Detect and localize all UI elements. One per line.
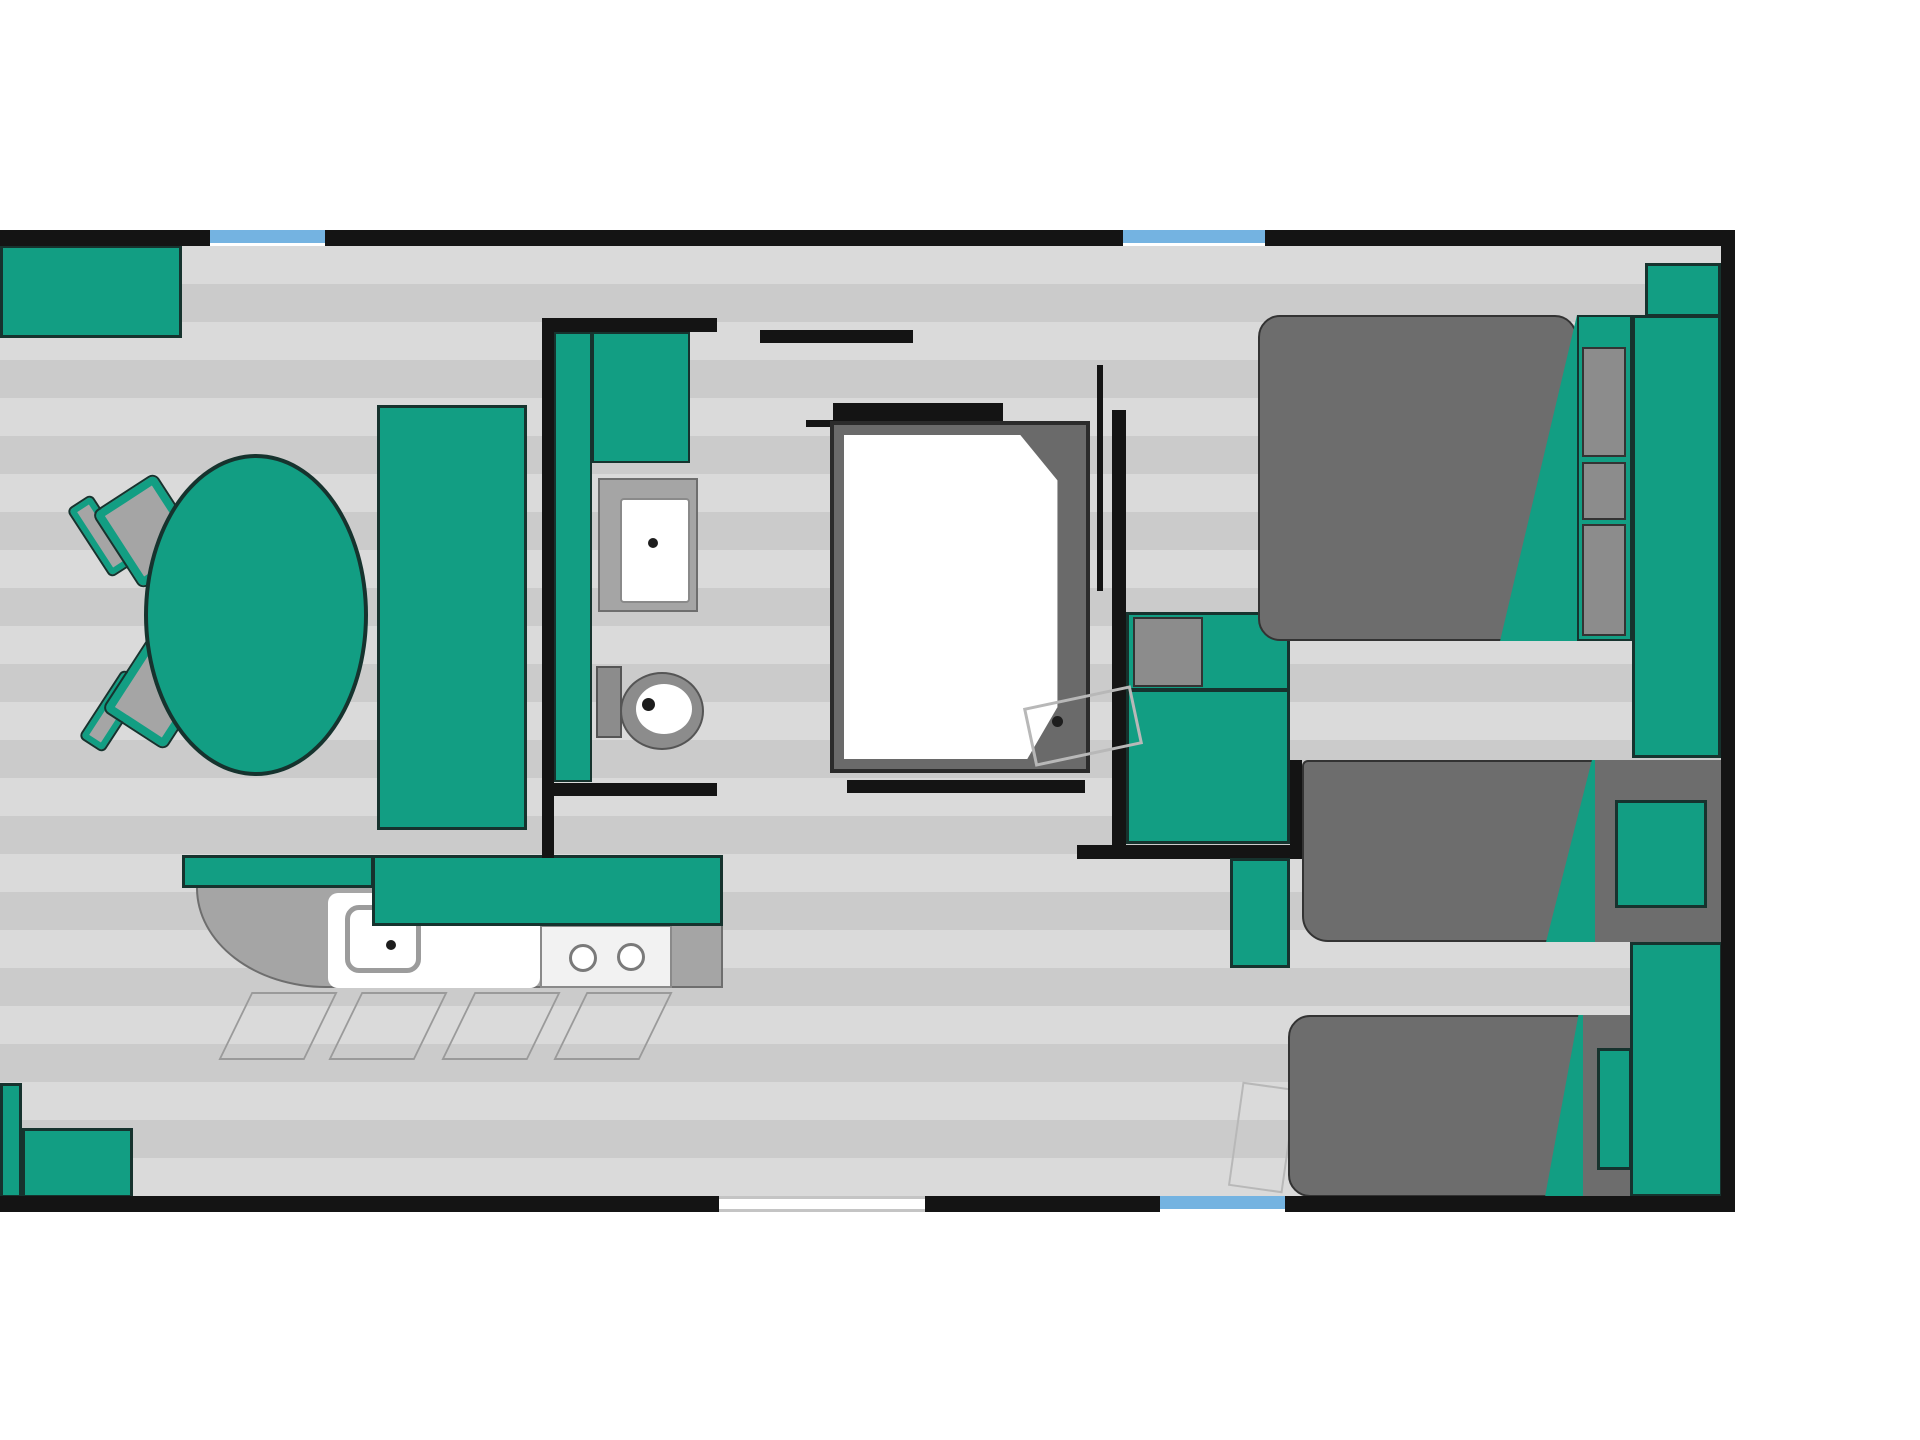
toilet-flush-dot — [642, 698, 655, 711]
cooktop — [540, 925, 672, 988]
washbasin — [620, 498, 690, 603]
kitchen-cabinet-block — [372, 855, 723, 926]
dining-table — [144, 454, 368, 776]
exterior-wall — [1721, 230, 1735, 1212]
burner — [569, 944, 597, 972]
cabinet-divider — [1126, 688, 1290, 692]
shelf-box — [1582, 524, 1626, 636]
bathroom-wall — [542, 783, 717, 796]
exterior-wall — [925, 1196, 1160, 1212]
entry-step — [22, 1128, 133, 1198]
kitchen-counter-edge — [182, 855, 374, 888]
shelf-box — [1582, 347, 1626, 457]
vanity-cabinet — [554, 332, 592, 782]
master-bed-headboard — [1632, 315, 1721, 758]
toilet-tank — [596, 666, 622, 738]
exterior-wall — [0, 1196, 719, 1212]
exterior-wall — [1285, 1196, 1735, 1212]
partition-wall — [1112, 410, 1126, 857]
bedroom-wall — [1290, 760, 1302, 846]
corridor-cabinet — [1230, 858, 1290, 968]
corridor-wall — [1077, 845, 1303, 859]
exterior-wall — [0, 230, 210, 246]
sliding-door — [1097, 365, 1103, 591]
window — [1123, 230, 1265, 246]
floor-plan — [0, 0, 1920, 1440]
bathroom-wall — [760, 330, 913, 343]
entry-step — [0, 1083, 22, 1198]
bathroom-wall — [542, 318, 717, 332]
faucet-dot — [648, 538, 658, 548]
bathroom-cabinet — [592, 332, 690, 463]
sofa — [0, 245, 182, 338]
faucet-dot — [386, 940, 396, 950]
entry-door-gap — [719, 1196, 925, 1212]
bathroom-wall — [542, 318, 554, 858]
exterior-wall — [325, 230, 1735, 246]
pillow — [1615, 800, 1707, 908]
single-bed-mattress — [1302, 760, 1595, 942]
window — [1160, 1196, 1285, 1212]
single-bed-mattress — [1288, 1015, 1583, 1197]
burner — [617, 943, 645, 971]
window — [210, 230, 325, 246]
shelf-box — [1582, 462, 1626, 520]
nightstand-column — [1630, 942, 1723, 1197]
master-bed-headboard — [1645, 263, 1721, 317]
shower-wall — [833, 403, 1003, 421]
bench-seat — [377, 405, 527, 830]
corridor-cabinet-shelf — [1133, 617, 1203, 687]
pillow — [1597, 1048, 1632, 1170]
shower-wall — [847, 780, 1085, 793]
